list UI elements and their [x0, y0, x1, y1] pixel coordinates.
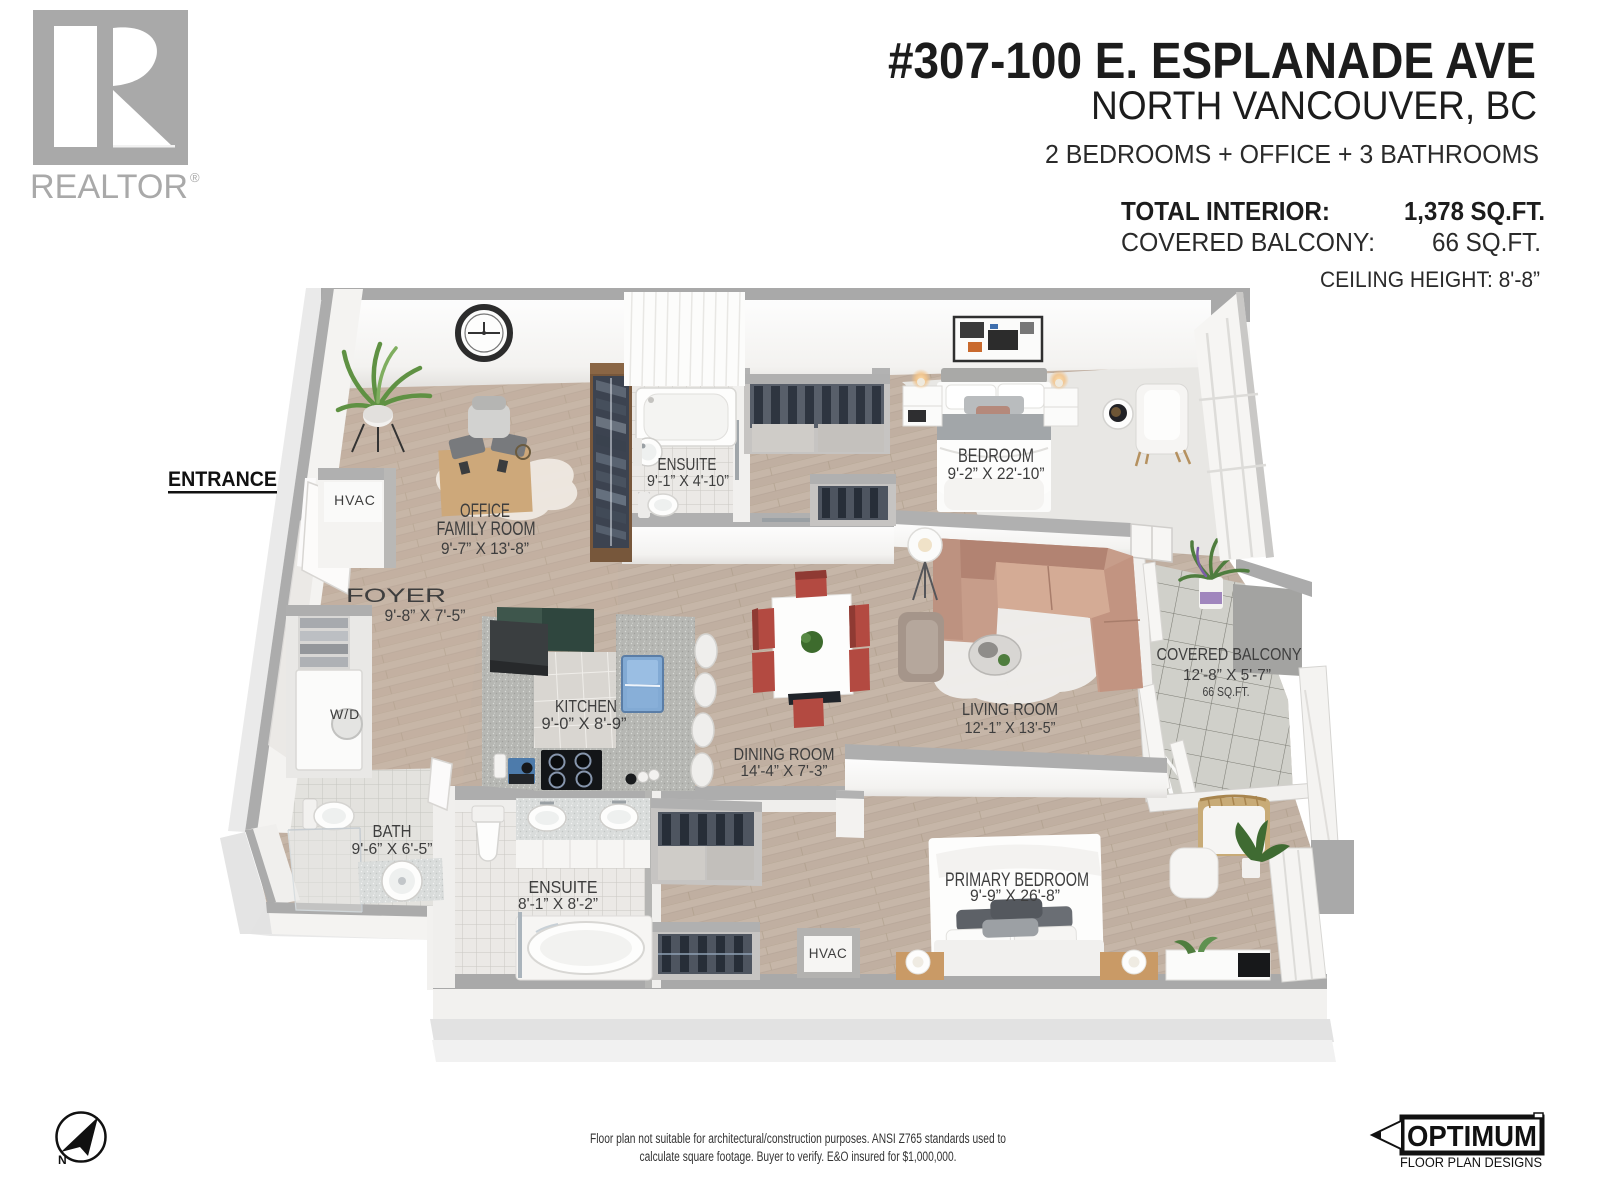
svg-text:ENTRANCE: ENTRANCE — [168, 468, 277, 491]
svg-text:calculate square footage. Buye: calculate square footage. Buyer to verif… — [640, 1149, 957, 1164]
svg-text:9'-1” X 4'-10”: 9'-1” X 4'-10” — [647, 473, 729, 490]
svg-text:FOYER: FOYER — [346, 586, 446, 607]
svg-text:KITCHEN: KITCHEN — [555, 696, 617, 716]
svg-text:N: N — [58, 1153, 67, 1167]
svg-text:9'-6” X 6'-5”: 9'-6” X 6'-5” — [352, 841, 433, 858]
svg-text:#307-100 E. ESPLANADE AVE: #307-100 E. ESPLANADE AVE — [888, 32, 1536, 89]
svg-text:BATH: BATH — [373, 821, 412, 841]
svg-text:REALTOR: REALTOR — [30, 168, 188, 206]
svg-text:2 BEDROOMS + OFFICE + 3 BATHRO: 2 BEDROOMS + OFFICE + 3 BATHROOMS — [1045, 139, 1539, 169]
svg-text:8'-1” X 8'-2”: 8'-1” X 8'-2” — [518, 896, 598, 913]
svg-text:FLOOR PLAN DESIGNS: FLOOR PLAN DESIGNS — [1400, 1155, 1542, 1170]
svg-text:FAMILY ROOM: FAMILY ROOM — [437, 519, 536, 540]
svg-text:W/D: W/D — [330, 706, 360, 722]
svg-text:Floor plan not suitable for ar: Floor plan not suitable for architectura… — [590, 1131, 1006, 1146]
svg-text:1,378 SQ.FT.: 1,378 SQ.FT. — [1404, 196, 1545, 226]
svg-text:COVERED BALCONY: COVERED BALCONY — [1157, 644, 1302, 664]
svg-text:®: ® — [190, 170, 200, 185]
svg-text:12'-8” X 5'-7”: 12'-8” X 5'-7” — [1183, 667, 1271, 684]
svg-text:CEILING HEIGHT: 8'-8”: CEILING HEIGHT: 8'-8” — [1320, 267, 1540, 292]
svg-text:LIVING ROOM: LIVING ROOM — [962, 699, 1058, 719]
svg-text:BEDROOM: BEDROOM — [958, 446, 1034, 467]
svg-text:HVAC: HVAC — [334, 492, 376, 508]
svg-text:14'-4” X 7'-3”: 14'-4” X 7'-3” — [741, 763, 828, 780]
svg-text:9'-8” X 7'-5”: 9'-8” X 7'-5” — [385, 607, 466, 625]
svg-text:ENSUITE: ENSUITE — [658, 454, 717, 474]
svg-text:9'-9” X 26'-8”: 9'-9” X 26'-8” — [970, 887, 1060, 905]
svg-text:9'-2” X 22'-10”: 9'-2” X 22'-10” — [948, 465, 1045, 483]
svg-text:HVAC: HVAC — [809, 946, 848, 961]
svg-text:66 SQ.FT.: 66 SQ.FT. — [1432, 227, 1541, 257]
svg-text:66 SQ.FT.: 66 SQ.FT. — [1203, 685, 1250, 699]
svg-text:9'-0” X 8'-9”: 9'-0” X 8'-9” — [542, 715, 627, 733]
svg-text:COVERED BALCONY:: COVERED BALCONY: — [1121, 227, 1375, 257]
svg-text:DINING ROOM: DINING ROOM — [734, 744, 835, 764]
svg-text:12'-1” X 13'-5”: 12'-1” X 13'-5” — [965, 720, 1056, 737]
svg-text:TOTAL INTERIOR:: TOTAL INTERIOR: — [1121, 196, 1330, 226]
svg-text:9'-7” X 13'-8”: 9'-7” X 13'-8” — [441, 540, 529, 558]
svg-text:OPTIMUM: OPTIMUM — [1407, 1121, 1537, 1153]
svg-text:NORTH VANCOUVER, BC: NORTH VANCOUVER, BC — [1091, 84, 1537, 128]
svg-text:ENSUITE: ENSUITE — [529, 877, 598, 897]
